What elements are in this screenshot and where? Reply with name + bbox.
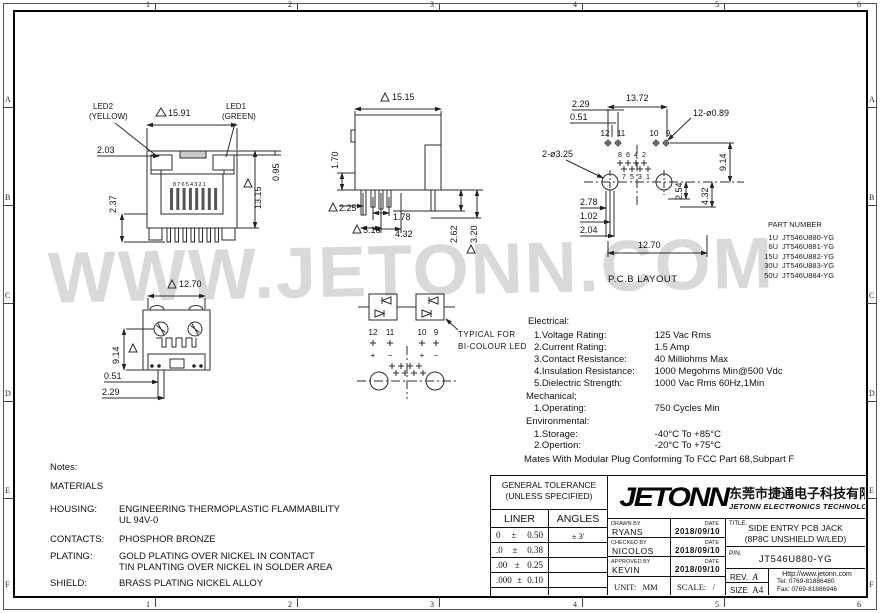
tol-pm: ± [517, 575, 522, 587]
logo-band: JETONN 东莞市捷通电子科技有限公司 JETONN ELECTRONICS … [608, 476, 865, 519]
spec-label: 2.Opertion: [534, 440, 652, 451]
ruler-col-label: 6 [857, 601, 861, 609]
drawn-by-cell: DRAWN BY RYANS [608, 519, 671, 538]
dim-pcb-c: 0.51 [570, 112, 588, 122]
title-block: GENERAL TOLERANCE (UNLESS SPECIFIED) LIN… [490, 475, 867, 597]
dim-side-b: 5.16 [363, 225, 381, 235]
drawn-by-name: RYANS [608, 527, 670, 537]
spec-row: 4.Insulation Resistance: 1000 Megohms Mi… [534, 366, 783, 377]
scale-cell: SCALE: / [671, 577, 726, 595]
drawing-sheet: 1 2 3 4 5 6 1 2 3 4 5 6 A B C D E F A B … [0, 0, 880, 613]
tol-digits: .000 [496, 575, 512, 587]
ruler-row-label: B [5, 194, 10, 202]
angles-empty [549, 573, 608, 588]
spec-row: 5.Dielectric Strength: 1000 Vac Rms 60Hz… [534, 378, 764, 389]
spec-value: 1000 Megohms Min@500 Vdc [655, 366, 783, 377]
led-pin10: 10 [418, 328, 427, 337]
date-label: DATE [671, 538, 725, 546]
pn-cell: P/N. JT546U880-YG [726, 547, 865, 569]
pcb-small-holes-note: 12-ø0.89 [693, 108, 729, 118]
dim-pcb-right-c: 2.54 [674, 182, 684, 200]
dim-bottom-a: 0.51 [104, 371, 122, 381]
approved-by-name: KEVIN [608, 565, 670, 575]
angles-empty [549, 558, 608, 573]
checked-date: 2018/09/10 [671, 546, 725, 555]
spec-row: 2.Opertion: -20°C To +75°C [534, 440, 721, 451]
pcb-layout-label: P.C.B LAYOUT [608, 274, 678, 285]
led-pin11: 11 [386, 328, 395, 337]
led-pin12: 12 [369, 328, 378, 337]
spec-row: 1.Operating: 750 Cycles Min [534, 403, 720, 414]
contacts-label: CONTACTS: [50, 534, 104, 545]
dim-pcb-bottom: 12.70 [638, 240, 661, 250]
pn-value: JT546U880-YG [726, 547, 865, 565]
checked-by-label: CHECKED BY [608, 538, 670, 546]
materials-title: MATERIALS [50, 481, 103, 492]
spec-value: -40°C To +85°C [655, 429, 721, 440]
title-cell: TITLE. SIDE ENTRY PCB JACK (8P8C UNSHIEL… [726, 519, 865, 547]
fax-number: Fax: 0769-81886946 [769, 586, 865, 594]
tol-value: 0.50 [527, 530, 543, 542]
ruler-row-label: A [5, 96, 11, 104]
dim-pcb-right-a: 9.14 [718, 153, 728, 171]
table-row: 15U JT546U882-YG [750, 252, 872, 262]
led1-label: LED1 [226, 102, 247, 111]
tol-digits: 0 [496, 530, 501, 542]
led-pol10: + [420, 351, 425, 360]
spec-row: 2.Current Rating: 1.5 Amp [534, 342, 690, 353]
pcb-pin5: 5 [630, 174, 634, 181]
tolerance-row: .000 ± 0.10 [491, 573, 549, 588]
angles-value: ± 3' [549, 528, 608, 543]
ruler-col-label: 2 [288, 601, 292, 609]
approved-date-cell: DATE 2018/09/10 [671, 557, 726, 577]
ruler-col-label: 5 [715, 601, 719, 609]
dim-pcb-right-b: 4.32 [700, 187, 710, 205]
table-row: 6U JT546U881-YG [750, 242, 872, 252]
dim-pcb-b: 2.29 [572, 99, 590, 109]
ruler-col-label: 3 [430, 601, 434, 609]
dim-side-a: 2.25 [339, 203, 357, 213]
housing-value: ENGINEERING THERMOPLASTIC FLAMMABILITY [119, 504, 340, 515]
spec-label: 2.Current Rating: [534, 342, 652, 353]
jetonn-logo: JETONN [608, 482, 728, 513]
tolerance-title-line1: GENERAL TOLERANCE [491, 480, 607, 491]
unit-cell: UNIT: MM [608, 577, 671, 595]
spec-value: -20°C To +75°C [655, 440, 721, 451]
ruler-col-label: 4 [573, 601, 577, 609]
led2-label: LED2 [93, 102, 114, 111]
drawn-date: 2018/09/10 [671, 527, 725, 536]
dim-pcb-left-c: 2.04 [580, 225, 598, 235]
front-view-drawing: LED2 (YELLOW) LED1 (GREEN) 15.91 2.03 2.… [85, 95, 300, 260]
pcb-big-holes-note: 2-ø3.25 [542, 149, 573, 159]
approved-by-label: APPROVED BY [608, 557, 670, 565]
dim-bottom-width: 12.70 [179, 279, 202, 289]
tolerance-title-line2: (UNLESS SPECIFIED) [491, 491, 607, 502]
shield-value: BRASS PLATING NICKEL ALLOY [119, 578, 263, 589]
tolerance-empty [491, 588, 549, 595]
spec-value: 40 Milliohms Max [655, 354, 728, 365]
pn-label: P/N. [729, 550, 742, 557]
notes-title: Notes: [50, 462, 77, 473]
dim-front-leg: 2.37 [108, 195, 118, 213]
part-table-title: PART NUMBER [750, 220, 872, 230]
spec-value: 750 Cycles Min [655, 403, 720, 414]
specs-footer: Mates With Modular Plug Conforming To FC… [524, 454, 794, 465]
pcb-pin9: 9 [666, 129, 671, 138]
checked-by-name: NICOLOS [608, 546, 670, 556]
dim-front-led-top: 0.95 [271, 163, 281, 181]
led-pol12: + [371, 351, 376, 360]
part-qty: 6U [750, 242, 782, 252]
spec-label: 1.Voltage Rating: [534, 330, 652, 341]
angles-empty [549, 543, 608, 558]
dim-bottom-b: 2.29 [102, 387, 120, 397]
ruler-row-label: F [5, 581, 9, 589]
tol-value: 0.38 [527, 545, 543, 557]
pcb-pin11: 11 [617, 129, 626, 138]
specs-electrical-title: Electrical: [528, 316, 569, 327]
led-note-line1: TYPICAL FOR [458, 330, 516, 339]
part-qty: 1U [750, 233, 782, 243]
pcb-pin6: 6 [626, 152, 630, 159]
part-pn: JT546U882-YG [782, 252, 834, 262]
ruler-row-label: C [869, 292, 874, 300]
spec-value: 1000 Vac Rms 60Hz,1Min [655, 378, 765, 389]
drawing-title-line2: (8P8C UNSHIELD W/LED) [726, 534, 865, 545]
spec-label: 3.Contact Resistance: [534, 354, 652, 365]
dim-front-led-side: 2.03 [97, 145, 115, 155]
tol-pm: ± [513, 545, 518, 557]
housing-label: HOUSING: [50, 504, 97, 515]
dim-front-width: 15.91 [168, 108, 191, 118]
angles-header: ANGLES [549, 510, 608, 528]
drawn-date-cell: DATE 2018/09/10 [671, 519, 726, 538]
date-label: DATE [671, 519, 725, 527]
checked-by-cell: CHECKED BY NICOLOS [608, 538, 671, 557]
spec-row: 1.Storage: -40°C To +85°C [534, 429, 721, 440]
scale-value: / [713, 582, 715, 592]
ruler-row-label: D [869, 390, 875, 398]
ruler-col-label: 1 [146, 1, 150, 9]
specs-environmental-title: Environmental: [526, 416, 589, 427]
size-value: A4 [752, 585, 763, 595]
pcb-pin4: 4 [634, 152, 638, 159]
dim-side-width: 15.15 [392, 92, 415, 102]
spec-label: 4.Insulation Resistance: [534, 366, 652, 377]
plating-value: GOLD PLATING OVER NICKEL IN CONTACT [119, 551, 315, 562]
spec-value: 125 Vac Rms [655, 330, 711, 341]
led-schematic-drawing: 12 11 10 9 + − + − TYPICAL FOR BI-COLOUR… [345, 278, 550, 408]
pcb-pin2: 2 [642, 152, 646, 159]
side-view-drawing: 15.15 1.70 2.25 5.16 1.78 4.32 2.62 3.20 [325, 85, 545, 255]
bottom-view-geometry [102, 280, 210, 399]
pcb-pin12: 12 [601, 129, 610, 138]
spec-row: 3.Contact Resistance: 40 Milliohms Max [534, 354, 728, 365]
pcb-pin10: 10 [650, 129, 659, 138]
part-qty: 30U [750, 261, 782, 271]
part-pn: JT546U883-YG [782, 261, 834, 271]
spec-value: 1.5 Amp [655, 342, 690, 353]
ruler-row-label: A [869, 96, 875, 104]
pcb-pin1: 1 [646, 174, 650, 181]
dim-side-e: 2.62 [449, 225, 459, 243]
size-label: SIZE [730, 586, 748, 595]
part-pn: JT546U880-YG [782, 233, 834, 243]
checked-date-cell: DATE 2018/09/10 [671, 538, 726, 557]
table-row: 50U JT546U884-YG [750, 271, 872, 281]
tolerance-header: GENERAL TOLERANCE (UNLESS SPECIFIED) [491, 476, 608, 510]
rev-value: A [752, 572, 758, 582]
ruler-col-label: 5 [715, 1, 719, 9]
ruler-row-label: C [5, 292, 10, 300]
front-pin-numbers: 87654321 [173, 182, 207, 188]
tolerance-row: .00 ± 0.25 [491, 558, 549, 573]
dim-side-depth: 1.70 [330, 151, 340, 169]
ruler-col-label: 1 [146, 601, 150, 609]
table-row: 30U JT546U883-YG [750, 261, 872, 271]
ruler-row-label: B [869, 194, 874, 202]
angles-empty [549, 588, 608, 595]
website-url: Http://www.jetonn.com [769, 569, 865, 578]
tol-value: 0.10 [527, 575, 543, 587]
ruler-row-label: E [5, 487, 10, 495]
contacts-value: PHOSPHOR BRONZE [119, 534, 216, 545]
company-name-en: JETONN ELECTRONICS TECHNOLOGY [729, 502, 865, 511]
ruler-col-label: 2 [288, 1, 292, 9]
tel-number: Tel: 0769-81886480 [769, 578, 865, 586]
company-name-cn: 东莞市捷通电子科技有限公司 [729, 483, 865, 502]
part-qty: 50U [750, 271, 782, 281]
unit-label: UNIT: [614, 582, 636, 592]
spec-label: 1.Operating: [534, 403, 652, 414]
company-name: 东莞市捷通电子科技有限公司 JETONN ELECTRONICS TECHNOL… [715, 483, 865, 511]
tol-pm: ± [515, 560, 520, 572]
pcb-pin7: 7 [622, 174, 626, 181]
contact-cell: Http://www.jetonn.com Tel: 0769-81886480… [769, 569, 865, 595]
ruler-col-label: 6 [857, 1, 861, 9]
tol-digits: .00 [496, 560, 507, 572]
part-pn: JT546U884-YG [782, 271, 834, 281]
led2-color: (YELLOW) [89, 112, 128, 121]
date-label: DATE [671, 557, 725, 565]
led-schematic-geometry [357, 294, 458, 399]
ruler-row-label: D [5, 390, 11, 398]
housing-value2: UL 94V-0 [119, 515, 158, 526]
part-number-table: PART NUMBER 1U JT546U880-YG 6U JT546U881… [750, 220, 872, 280]
specs-mechanical-title: Mechanical; [526, 391, 577, 402]
tol-digits: .0 [496, 545, 503, 557]
led-note-line2: BI-COLOUR LED [458, 342, 527, 351]
plating-value2: TIN PLANTING OVER NICKEL IN SOLDER AREA [119, 562, 332, 573]
unit-value: MM [643, 582, 658, 592]
pcb-pin3: 3 [638, 174, 642, 181]
liner-header: LINER [491, 510, 549, 528]
scale-label: SCALE: [677, 582, 706, 592]
table-row: 1U JT546U880-YG [750, 233, 872, 243]
drawn-by-label: DRAWN BY [608, 519, 670, 527]
part-qty: 15U [750, 252, 782, 262]
plating-label: PLATING: [50, 551, 93, 562]
front-view-geometry [97, 108, 281, 242]
tolerance-row: .0 ± 0.38 [491, 543, 549, 558]
ruler-row-label: E [869, 487, 874, 495]
dim-side-c: 1.78 [393, 212, 411, 222]
ruler-row-label: F [869, 581, 873, 589]
ruler-col-label: 4 [573, 1, 577, 9]
bottom-view-drawing: 12.70 9.14 0.51 2.29 [100, 272, 270, 422]
tol-pm: ± [511, 530, 516, 542]
rev-cell: REV. A [726, 569, 769, 583]
dim-side-d: 4.32 [395, 229, 413, 239]
tol-value: 0.25 [527, 560, 543, 572]
dim-pcb-left-a: 2.78 [580, 197, 598, 207]
led-pol9: − [434, 351, 439, 360]
size-cell: SIZE A4 [726, 583, 769, 595]
spec-row: 1.Voltage Rating: 125 Vac Rms [534, 330, 711, 341]
dim-pcb-top: 13.72 [626, 93, 649, 103]
spec-label: 5.Dielectric Strength: [534, 378, 652, 389]
dim-bottom-height: 9.14 [111, 346, 121, 364]
shield-label: SHIELD: [50, 578, 87, 589]
pcb-pin8: 8 [618, 152, 622, 159]
dim-side-f: 3.20 [469, 225, 479, 243]
rev-label: REV. [730, 573, 748, 582]
led-pol11: − [388, 351, 393, 360]
dim-front-height: 13.15 [253, 186, 263, 209]
title-label: TITLE. [729, 521, 747, 527]
led1-color: (GREEN) [222, 112, 256, 121]
dim-pcb-left-b: 1.02 [580, 211, 598, 221]
spec-label: 1.Storage: [534, 429, 652, 440]
approved-date: 2018/09/10 [671, 565, 725, 574]
ruler-col-label: 3 [430, 1, 434, 9]
approved-by-cell: APPROVED BY KEVIN [608, 557, 671, 577]
led-pin9: 9 [434, 328, 439, 337]
part-pn: JT546U881-YG [782, 242, 834, 252]
tolerance-row: 0 ± 0.50 [491, 528, 549, 543]
